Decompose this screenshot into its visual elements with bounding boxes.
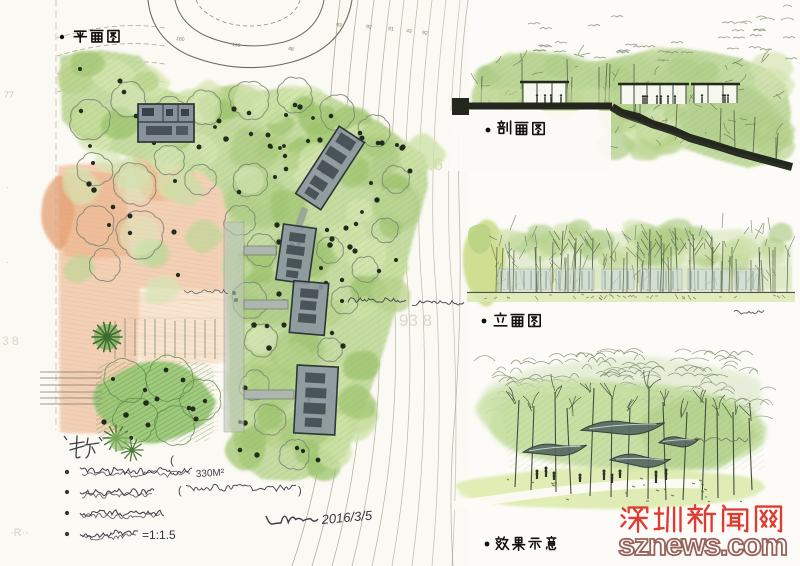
svg-text:93: 93 (336, 22, 343, 29)
svg-text:92: 92 (366, 24, 373, 31)
svg-text:92: 92 (422, 30, 429, 37)
svg-text:330M²: 330M² (196, 467, 226, 480)
svg-text:48: 48 (288, 46, 295, 53)
svg-text:): ) (298, 485, 302, 497)
svg-text:(: ( (178, 485, 182, 497)
svg-text:149: 149 (232, 42, 241, 49)
svg-text:·: · (6, 183, 9, 192)
svg-text:(: ( (170, 453, 174, 467)
svg-text:160: 160 (176, 36, 185, 43)
svg-text:91: 91 (388, 26, 395, 33)
svg-text:3 8: 3 8 (2, 334, 19, 348)
svg-text:·R··: ·R·· (10, 527, 29, 539)
svg-text:=1:1.5: =1:1.5 (142, 528, 176, 542)
svg-text:93 8: 93 8 (399, 311, 432, 330)
svg-text:sznews.com: sznews.com (618, 527, 787, 562)
svg-text:·: · (6, 258, 9, 267)
svg-text:77: 77 (4, 90, 14, 100)
svg-text:43: 43 (406, 28, 413, 35)
